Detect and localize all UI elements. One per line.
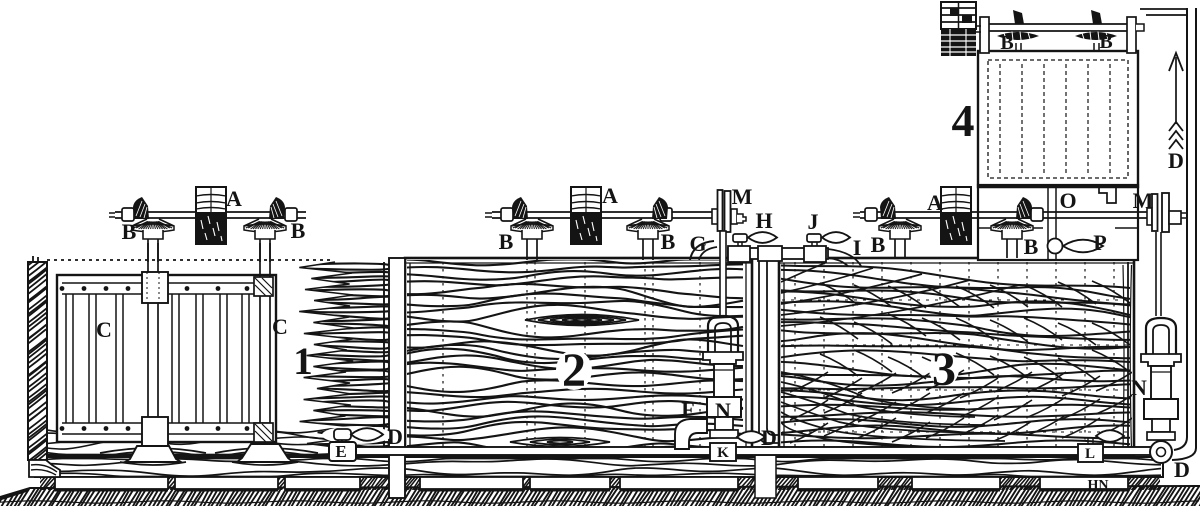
svg-text:I: I xyxy=(853,235,862,260)
svg-text:C: C xyxy=(272,314,288,339)
svg-text:N: N xyxy=(715,398,731,423)
svg-text:D: D xyxy=(387,424,403,449)
svg-text:B: B xyxy=(499,229,514,254)
svg-text:1: 1 xyxy=(293,340,313,383)
svg-text:E: E xyxy=(335,442,346,461)
svg-text:H: H xyxy=(755,208,772,233)
svg-text:3: 3 xyxy=(932,343,956,396)
svg-text:M: M xyxy=(1133,188,1154,213)
svg-text:M: M xyxy=(732,184,753,209)
svg-text:A: A xyxy=(226,186,242,211)
svg-text:G: G xyxy=(689,231,706,256)
svg-text:D: D xyxy=(761,425,777,450)
svg-text:F: F xyxy=(681,397,694,422)
svg-text:P: P xyxy=(1093,230,1106,255)
svg-text:O: O xyxy=(1059,188,1076,213)
svg-text:HN: HN xyxy=(1088,478,1109,493)
svg-text:A: A xyxy=(927,190,943,215)
svg-text:K: K xyxy=(717,445,729,461)
svg-text:D: D xyxy=(1168,148,1184,173)
svg-text:C: C xyxy=(96,317,112,342)
svg-text:B: B xyxy=(1099,31,1112,53)
svg-text:B: B xyxy=(1024,234,1039,259)
svg-text:J: J xyxy=(808,209,819,234)
svg-text:4: 4 xyxy=(952,95,975,146)
svg-text:2: 2 xyxy=(562,344,586,397)
svg-text:N: N xyxy=(1131,375,1147,400)
svg-text:D: D xyxy=(1174,457,1190,482)
svg-text:B: B xyxy=(1000,32,1013,54)
svg-text:B: B xyxy=(661,229,676,254)
svg-text:A: A xyxy=(602,183,618,208)
svg-text:L: L xyxy=(1085,446,1095,462)
svg-text:B: B xyxy=(122,219,137,244)
svg-text:B: B xyxy=(871,232,886,257)
svg-text:B: B xyxy=(291,218,306,243)
